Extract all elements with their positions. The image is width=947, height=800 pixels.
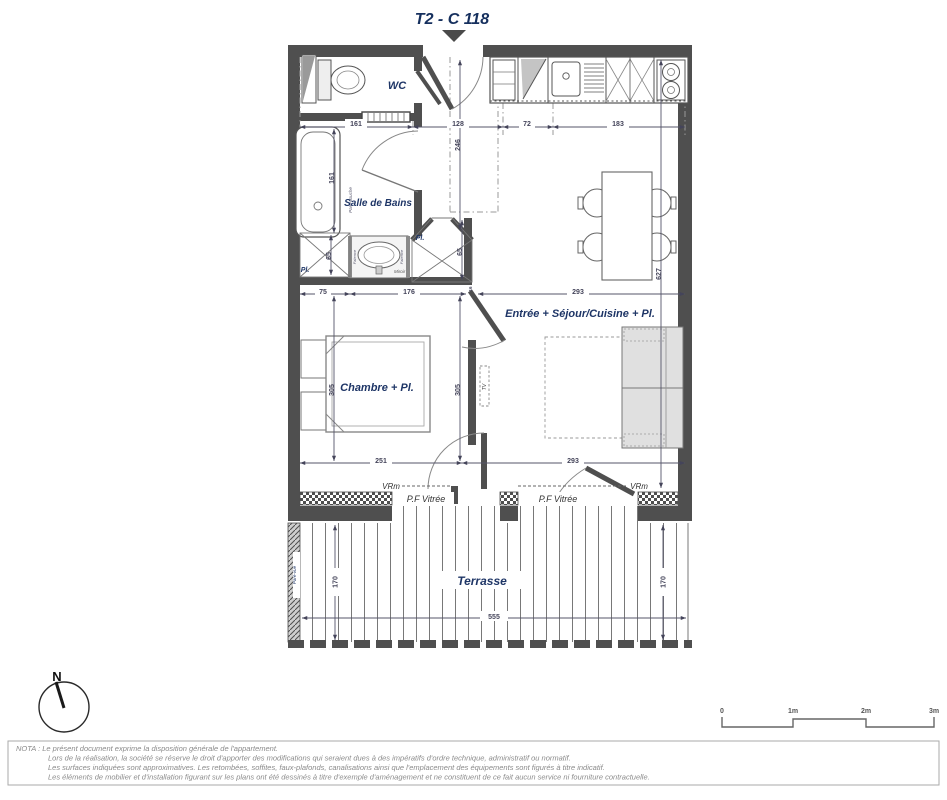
toilet-tank <box>318 60 331 100</box>
dim-75: 75 <box>319 289 327 296</box>
closet-right-label: Pl. <box>416 235 425 242</box>
window-sill-right <box>638 492 678 505</box>
shutter-right-label: VRm <box>630 482 648 491</box>
dim-305-left: 305 <box>329 384 336 396</box>
bathroom-room: Pare-douche Salle de Bains Faïence Faïen… <box>296 127 412 278</box>
dim-555: 555 <box>488 614 500 621</box>
dining-table <box>602 172 652 280</box>
wall-bottom-right <box>638 506 692 521</box>
dim-627: 627 <box>656 268 663 280</box>
dim-161-top: 161 <box>350 121 362 128</box>
bathroom-label: Salle de Bains <box>344 198 412 209</box>
dim-170-left: 170 <box>333 576 340 588</box>
nightstand-top <box>301 340 327 378</box>
north-arrow: N <box>39 669 89 732</box>
scale-bar: 0 1m 2m 3m <box>720 708 939 727</box>
wall-bottom-left <box>288 506 392 521</box>
nightstand-bottom <box>301 392 327 430</box>
dim-293-bottom: 293 <box>567 458 579 465</box>
wc-door-leaf <box>417 71 440 104</box>
nota-line-3: Les surfaces indiquées sont approximativ… <box>48 763 605 772</box>
kitchen <box>490 57 688 103</box>
tv-label: TV <box>482 383 488 390</box>
dim-183: 183 <box>612 121 624 128</box>
dim-293-mid: 293 <box>572 289 584 296</box>
wall-left <box>288 45 300 521</box>
entry-door-swing <box>452 57 483 109</box>
wall-closet-right <box>464 218 472 285</box>
wc-label: WC <box>388 80 407 92</box>
scale-0: 0 <box>720 708 724 715</box>
floorplan-drawing: T2 - C 118 <box>0 0 947 800</box>
bedroom-label: Chambre + Pl. <box>340 382 414 394</box>
wall-bottom-center <box>500 506 518 521</box>
dim-305-right: 305 <box>455 384 462 396</box>
tiling-left-label: Faïence <box>352 249 357 264</box>
mirror-label: Miroir <box>394 269 406 274</box>
glazed-door-right-label: P.F Vitrée <box>539 494 578 504</box>
bath-door-leaf <box>362 170 418 192</box>
wall-wc-right-top <box>414 57 422 71</box>
bedroom-door-leaf <box>481 433 487 489</box>
scale-2m: 2m <box>861 708 871 715</box>
floorplan-page: T2 - C 118 <box>0 0 947 800</box>
north-label: N <box>52 669 61 684</box>
nota-line-4: Les éléments de mobilier et d'installati… <box>48 773 650 782</box>
tiled-wall-right <box>406 236 410 278</box>
shutter-left-label: VRm <box>382 482 400 491</box>
entry-marker-icon <box>442 30 466 42</box>
window-leaf-right <box>586 468 634 494</box>
terrace-label: Terrasse <box>457 574 507 588</box>
dim-246: 246 <box>455 139 462 151</box>
scale-1m: 1m <box>788 708 798 715</box>
plan-title: T2 - C 118 <box>415 11 490 42</box>
dim-161-bath: 161 <box>329 172 336 184</box>
nota-box: NOTA : Le présent document exprime la di… <box>8 741 939 785</box>
terrace-area: Pare-vue Terrasse <box>288 506 692 644</box>
dim-251: 251 <box>375 458 387 465</box>
nota-line-2: Lors de la réalisation, la société se ré… <box>48 754 571 763</box>
plan-title-text: T2 - C 118 <box>415 11 490 28</box>
bedroom-room: Chambre + Pl. <box>301 336 430 432</box>
hall-door-leaf <box>470 291 504 341</box>
dim-170-right: 170 <box>661 576 668 588</box>
bath-door-swing <box>362 131 418 170</box>
window-sill-left <box>300 492 392 505</box>
scale-3m: 3m <box>929 708 939 715</box>
dim-72: 72 <box>523 121 531 128</box>
dim-176: 176 <box>403 289 415 296</box>
washbasin-tap <box>376 266 382 274</box>
dim-128: 128 <box>452 121 464 128</box>
living-label: Entrée + Séjour/Cuisine + Pl. <box>505 308 655 320</box>
wall-top-right <box>483 45 692 57</box>
living-room: TV Entrée + Séjour/Cuisine + Pl. <box>480 308 683 448</box>
wc-room: WC <box>302 55 410 122</box>
toilet-bowl <box>331 66 365 94</box>
dim-16: 16 <box>468 286 473 292</box>
wall-wc-right-bottom <box>414 103 422 127</box>
tiling-right-label: Faïence <box>399 249 404 264</box>
window-sill-center <box>500 492 518 505</box>
scale-bar-line <box>722 717 934 727</box>
wall-tv <box>468 340 476 445</box>
closet-left-label: Pl. <box>301 267 310 274</box>
north-needle <box>56 682 64 708</box>
dim-65-right: 65 <box>457 248 464 256</box>
dim-65-left: 65 <box>326 252 333 260</box>
privacy-screen-label: Pare-vue <box>292 565 297 584</box>
glazed-door-left-label: P.F Vitrée <box>407 494 446 504</box>
nota-line-1: NOTA : Le présent document exprime la di… <box>16 744 278 753</box>
